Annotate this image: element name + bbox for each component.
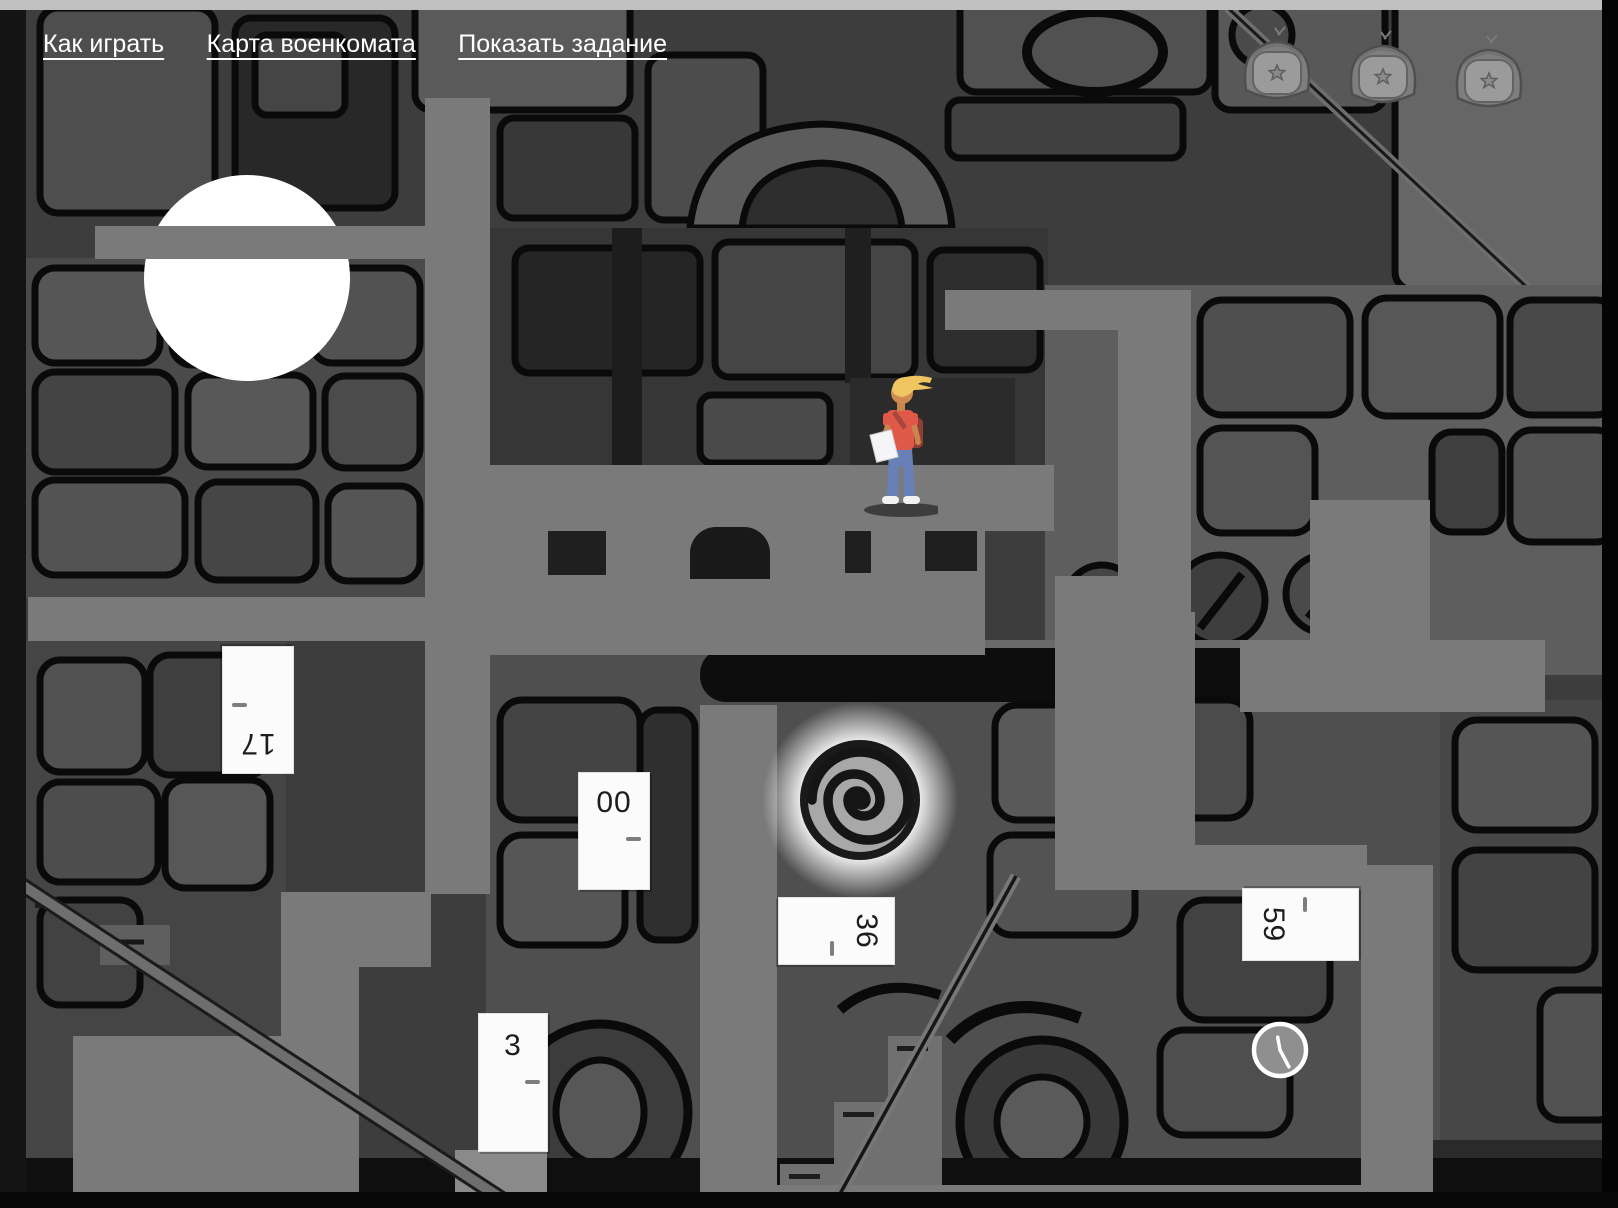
door-handle (525, 1080, 540, 1084)
player-character (858, 368, 938, 518)
window-opening (548, 531, 606, 575)
door-handle (626, 837, 641, 841)
screen-edge-left (0, 10, 26, 1208)
stair-step (888, 1036, 942, 1185)
menu-link-show-task[interactable]: Показать задание (458, 30, 667, 58)
platform (425, 98, 490, 894)
door-36[interactable]: 36 (778, 897, 895, 965)
portal-spiral[interactable] (760, 700, 960, 900)
menu-link-map[interactable]: Карта военкомата (207, 30, 416, 58)
door-handle (1303, 897, 1307, 912)
platform (1118, 290, 1191, 612)
hat-star-badge-icon (1232, 22, 1322, 102)
door-number: 3 (478, 1029, 548, 1063)
screen-edge-right (1602, 0, 1618, 1208)
top-menu: Как играть Карта военкомата Показать зад… (43, 30, 705, 59)
step-mark (789, 1174, 820, 1179)
step-mark (897, 1046, 928, 1051)
door-17[interactable]: 17 (222, 646, 294, 774)
door-59[interactable]: 59 (1242, 888, 1359, 961)
platform (73, 1036, 281, 1208)
door-handle (830, 941, 834, 956)
hat-star-badge-icon (1444, 30, 1534, 110)
platform (281, 967, 359, 1208)
screen-edge-bottom (0, 1192, 1618, 1208)
game-stage: 17 00 36 3 59 (0, 0, 1618, 1208)
door-number: 59 (1256, 888, 1290, 961)
hat-star-badge-icon (1338, 26, 1428, 106)
window-opening (690, 527, 770, 579)
door-3[interactable]: 3 (478, 1013, 548, 1152)
platform (1055, 612, 1195, 848)
platform (1310, 500, 1430, 640)
screen-edge-top (0, 0, 1618, 10)
window-opening (845, 531, 871, 573)
door-handle (232, 703, 247, 707)
clock-icon (1248, 1018, 1312, 1082)
door-number: 36 (849, 897, 883, 965)
platform (28, 597, 425, 641)
menu-link-how-to-play[interactable]: Как играть (43, 30, 164, 58)
platform (1055, 576, 1191, 612)
character-shadow (864, 503, 938, 517)
step-mark (35, 903, 66, 908)
platform (281, 892, 431, 967)
platform (1361, 865, 1433, 1208)
platform (488, 465, 1054, 531)
moon (144, 175, 350, 381)
door-number: 17 (222, 726, 294, 760)
window-opening (925, 531, 977, 571)
door-00[interactable]: 00 (578, 772, 650, 890)
platform (1055, 845, 1367, 890)
door-number: 00 (578, 786, 650, 820)
step-mark (843, 1112, 874, 1117)
platform (1240, 640, 1545, 712)
